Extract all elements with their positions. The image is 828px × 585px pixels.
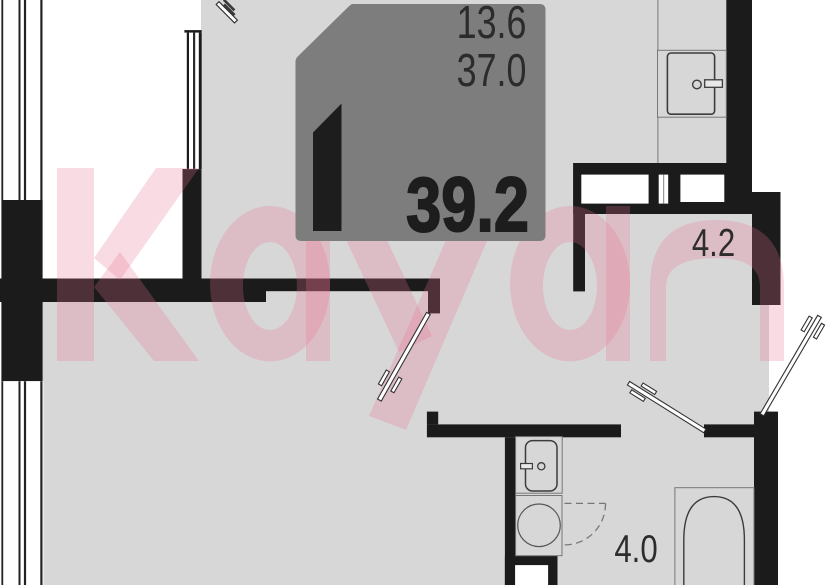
svg-text:37.0: 37.0 <box>457 45 527 96</box>
svg-text:4.0: 4.0 <box>614 528 657 571</box>
svg-text:13.6: 13.6 <box>457 0 527 48</box>
svg-text:39.2: 39.2 <box>406 161 529 247</box>
svg-text:4.2: 4.2 <box>692 222 735 265</box>
